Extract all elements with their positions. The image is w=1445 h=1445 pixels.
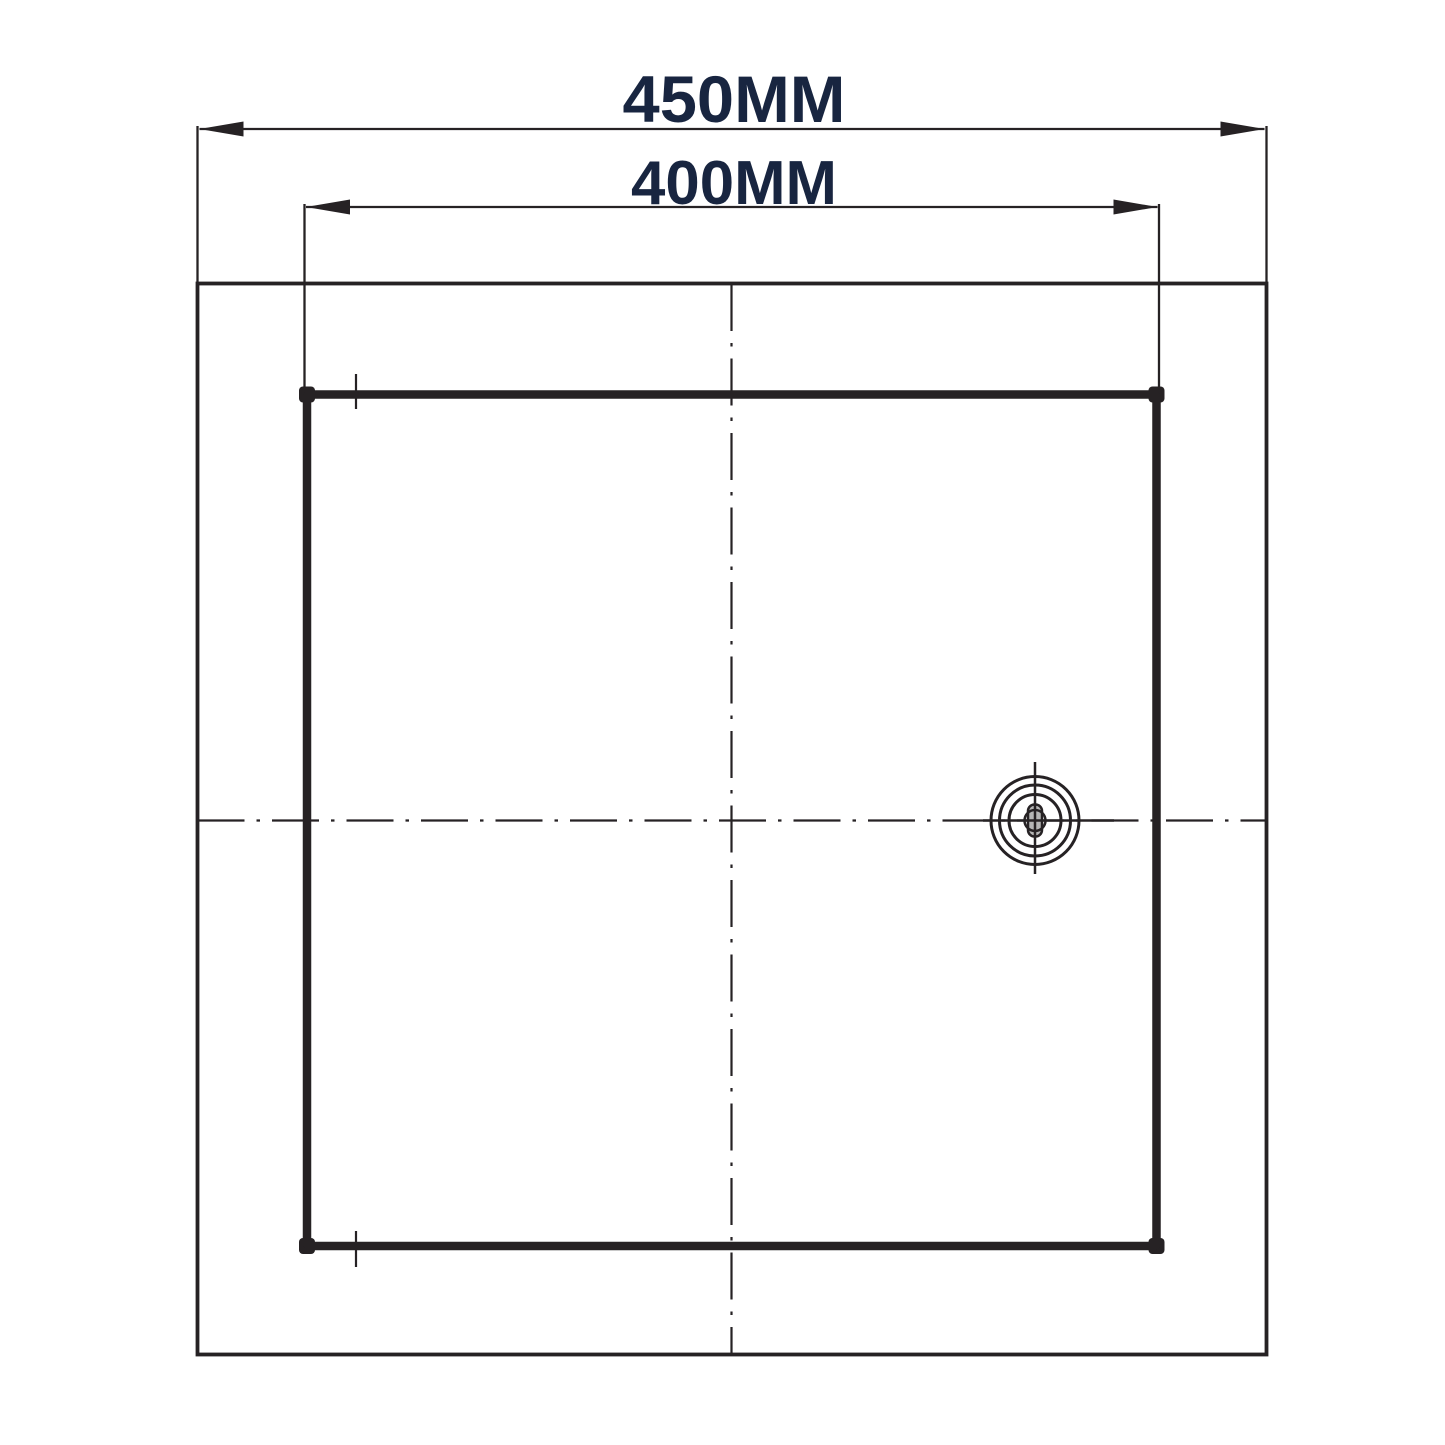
svg-text:450MM: 450MM <box>623 63 846 136</box>
